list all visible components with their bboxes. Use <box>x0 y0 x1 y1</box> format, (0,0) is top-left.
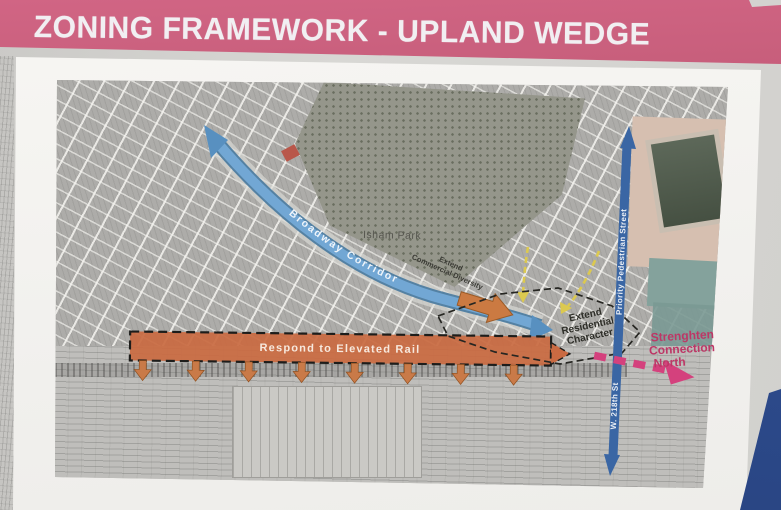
residential-character-label: Extend Residential Character <box>558 305 617 348</box>
label-line: North <box>653 355 686 371</box>
pedestrian-street-arrow: Priority Pedestrian Street W. 218th St <box>604 126 636 476</box>
pedestrian-street-label: Priority Pedestrian Street <box>615 209 629 316</box>
broadway-corridor-label: Broadway Corridor <box>287 207 401 286</box>
zoning-annotations: Isham Park Broadway Corridor Respond to … <box>0 0 781 510</box>
down-arrows <box>134 360 522 385</box>
arrowhead-down <box>604 454 620 476</box>
page-title: ZONING FRAMEWORK - UPLAND WEDGE <box>34 9 651 53</box>
park-label: Isham Park <box>363 229 422 242</box>
poster-photo: Isham Park Broadway Corridor Respond to … <box>0 0 781 510</box>
elevated-rail-label: Respond to Elevated Rail <box>260 342 421 356</box>
svg-text:Broadway Corridor: Broadway Corridor <box>287 207 401 286</box>
yellow-arrowhead <box>517 292 529 303</box>
elevated-rail-zone: Respond to Elevated Rail <box>130 331 571 385</box>
